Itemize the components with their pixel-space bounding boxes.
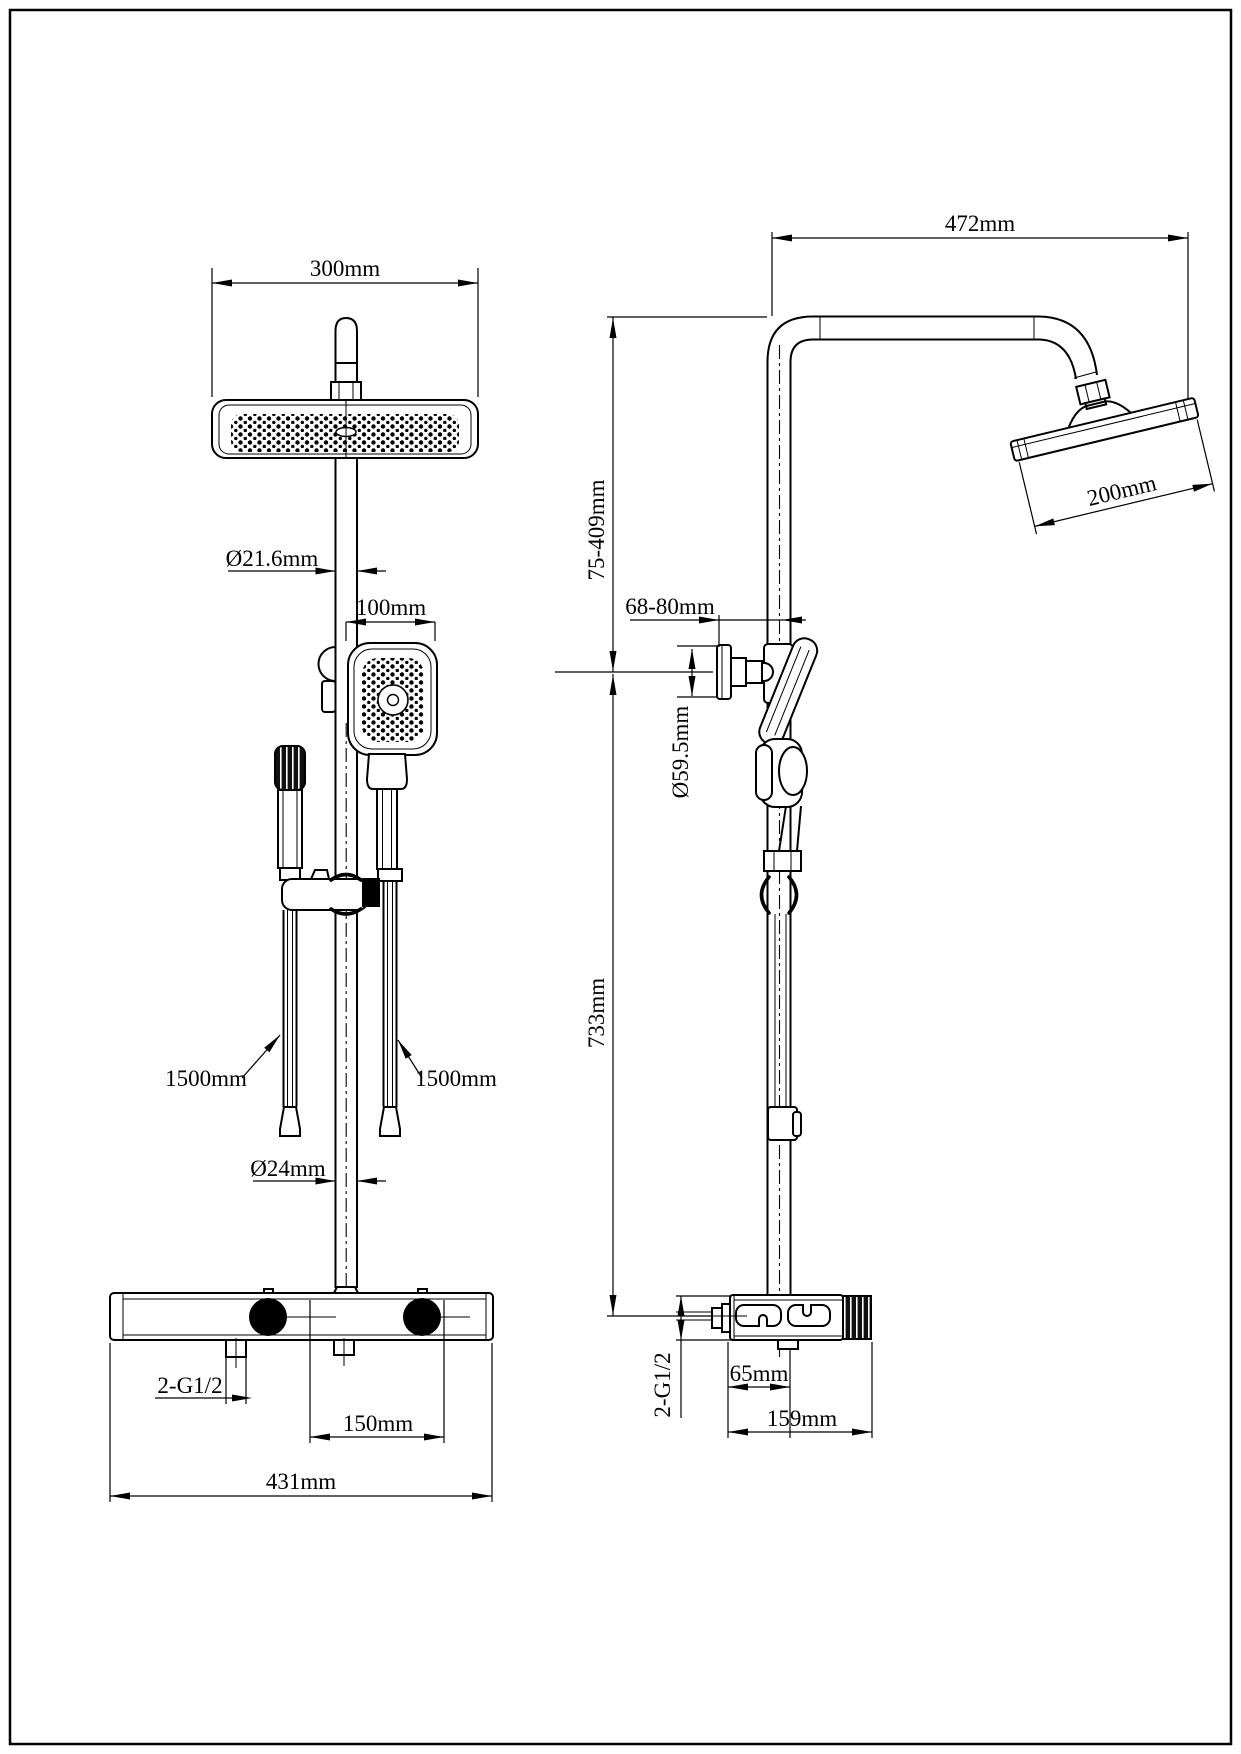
dim-label: 300mm	[310, 256, 380, 281]
dim-hose-right: 1500mm	[398, 1040, 497, 1091]
dim-label: 100mm	[356, 595, 426, 620]
dim-label: 65mm	[730, 1361, 789, 1386]
dim-pipe-lower-diameter: Ø24mm	[250, 1156, 386, 1185]
dim-bracket-diameter: Ø59.5mm	[668, 646, 717, 798]
wall-flange	[717, 645, 731, 699]
hose-left	[280, 910, 300, 1136]
inlet-step	[722, 1304, 730, 1332]
hand-shower-front	[348, 643, 437, 881]
dim-label: 431mm	[266, 1469, 336, 1494]
top-stem	[331, 318, 361, 400]
mixer-knob-left	[249, 1298, 287, 1336]
knurled-knob	[843, 1296, 871, 1339]
dim-label: Ø59.5mm	[668, 706, 693, 799]
dim-valve-depth: 159mm	[728, 1342, 872, 1438]
front-view: 300mm Ø21.6mm 100mm 1500mm 1500mm	[110, 256, 497, 1502]
mixer-bar	[110, 1287, 493, 1368]
hose-end-fitting	[280, 1107, 300, 1136]
hand-shower-side	[756, 635, 821, 1140]
drawing-sheet: 300mm Ø21.6mm 100mm 1500mm 1500mm	[0, 0, 1241, 1754]
rain-shower-head-front	[212, 400, 478, 458]
dim-label: 68-80mm	[625, 594, 715, 619]
dim-hose-left: 1500mm	[165, 1035, 280, 1091]
bottom-outlet	[778, 1340, 798, 1349]
dim-label: 159mm	[767, 1406, 837, 1431]
slider-clamp	[319, 647, 336, 712]
mixer-valve-side	[700, 1295, 871, 1349]
side-view: 200mm	[555, 211, 1216, 1438]
dim-bar-width: 431mm	[110, 1343, 492, 1502]
dim-wall-distance: 68-80mm	[625, 594, 806, 647]
dim-label: 75-409mm	[584, 479, 609, 580]
hose-end-fitting	[380, 1107, 400, 1136]
dim-pipe-upper-diameter: Ø21.6mm	[226, 546, 386, 575]
hose-nut	[378, 869, 402, 881]
dim-label: 2-G1/2	[650, 1352, 675, 1417]
dim-label: 1500mm	[415, 1066, 497, 1091]
wand-sprayer	[275, 746, 305, 880]
inlet-step	[712, 1308, 722, 1328]
dim-label: 200mm	[1085, 470, 1159, 511]
dim-hand-shower-width: 100mm	[346, 595, 435, 641]
dim-arm-reach: 472mm	[772, 211, 1188, 400]
dim-label: 150mm	[343, 1411, 413, 1436]
dim-label: Ø21.6mm	[226, 546, 319, 571]
rain-shower-head-side: 200mm	[1001, 361, 1216, 535]
dim-label: 472mm	[945, 211, 1015, 236]
dim-head-width: 300mm	[212, 256, 478, 397]
hose-right	[380, 881, 400, 1136]
hose-nut-side	[764, 851, 801, 871]
dim-label: 1500mm	[165, 1066, 247, 1091]
dim-label: 2-G1/2	[157, 1373, 222, 1398]
dim-label: 733mm	[584, 978, 609, 1048]
technical-drawing: 300mm Ø21.6mm 100mm 1500mm 1500mm	[0, 0, 1241, 1754]
wand-head	[275, 746, 305, 790]
hand-shower-grip	[367, 754, 407, 789]
dim-inlet-thread-front: 2-G1/2	[155, 1357, 252, 1404]
bracket-grip	[362, 878, 380, 907]
shower-arm	[768, 317, 1098, 380]
page-border	[10, 10, 1231, 1744]
dim-label: Ø24mm	[250, 1156, 326, 1181]
